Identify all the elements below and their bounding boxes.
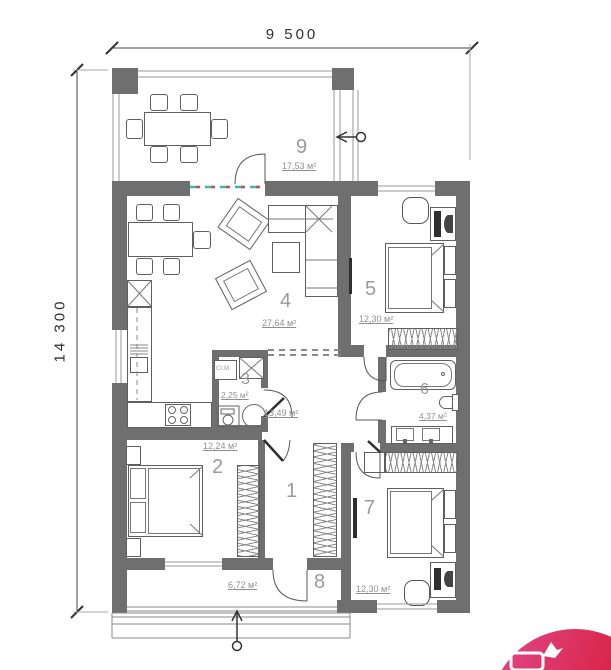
armchair <box>215 260 267 311</box>
entrance-arrow <box>232 611 242 651</box>
fridge <box>127 280 152 307</box>
room-2-area: 12,24 м² <box>203 441 237 451</box>
room-4-number: 4 <box>280 290 291 313</box>
nightstand <box>444 490 456 519</box>
nightstand <box>444 279 456 308</box>
wall <box>338 345 364 357</box>
wall <box>341 443 354 452</box>
wall <box>112 181 127 330</box>
office-chair <box>404 580 430 606</box>
armchair-seat <box>226 206 263 242</box>
toilet-cistern <box>452 394 459 411</box>
chair <box>150 94 168 111</box>
wall <box>378 420 386 443</box>
nightstand <box>126 446 141 465</box>
room-5-number: 5 <box>365 278 376 301</box>
sink <box>422 428 440 441</box>
desk-chair-tucked <box>444 215 453 233</box>
open-passage-dashes <box>268 350 340 355</box>
sink <box>396 428 414 441</box>
armchair-seat <box>223 268 259 302</box>
wardrobe <box>313 443 337 557</box>
chair <box>211 119 228 139</box>
bed-mattress <box>390 491 432 554</box>
wall <box>112 558 165 570</box>
computer-monitor <box>434 568 441 590</box>
wall <box>222 558 273 570</box>
office-chair <box>402 197 429 224</box>
room-9-area: 17,53 м² <box>282 161 316 171</box>
nightstand <box>126 538 141 557</box>
terrace-column <box>332 68 354 90</box>
room-9-number: 9 <box>296 136 307 159</box>
room-2-number: 2 <box>212 456 223 479</box>
wardrobe <box>237 465 260 557</box>
room-1-area: 13,49 м² <box>264 408 298 418</box>
room-3-number: 3 <box>241 371 250 389</box>
room-7-number: 7 <box>364 497 375 520</box>
chair <box>136 204 153 221</box>
plan-linework <box>0 0 611 670</box>
wall <box>341 452 351 613</box>
washing-machine-label: Ст.М. <box>216 366 231 372</box>
coffee-table <box>272 242 300 273</box>
radiator <box>353 498 357 538</box>
kitchen-counter <box>127 307 152 402</box>
wall <box>112 427 262 440</box>
porch-steps <box>112 607 350 638</box>
wall <box>112 383 127 613</box>
chair <box>163 204 180 221</box>
wall <box>378 357 386 392</box>
room-8-number: 8 <box>314 571 325 594</box>
chair <box>180 146 198 163</box>
dining-table <box>144 112 211 146</box>
toilet <box>439 396 453 409</box>
chair <box>126 119 143 139</box>
radiator <box>349 258 352 294</box>
terrace-exit-arrow <box>337 132 366 142</box>
computer-monitor <box>434 211 441 237</box>
wall <box>212 350 268 357</box>
floor-plan: Ст.М. <box>0 0 611 670</box>
wall <box>307 558 341 570</box>
room-8-area: 6,72 м² <box>228 580 257 590</box>
wall <box>437 600 470 613</box>
chair <box>136 258 153 275</box>
chair <box>180 94 198 111</box>
room-6-number: 6 <box>420 381 429 399</box>
pillow <box>130 502 146 533</box>
bed-mattress <box>148 468 200 534</box>
room-6-area: 4,37 м² <box>419 411 447 421</box>
wardrobe <box>385 452 458 473</box>
wall <box>265 181 378 196</box>
sofa <box>305 205 338 297</box>
watermark-logo-glyph <box>505 636 565 670</box>
chair <box>150 146 168 163</box>
chair <box>163 258 180 275</box>
armchair <box>217 198 270 250</box>
room-4-area: 27,64 м² <box>262 318 296 328</box>
desk-chair-tucked <box>444 571 453 587</box>
room-3-area: 2,25 м² <box>221 390 249 400</box>
dimension-width-label: 9 500 <box>252 26 332 43</box>
wall <box>380 443 456 452</box>
bed-mattress <box>388 247 432 309</box>
dimension-height-label: 14 300 <box>52 291 69 371</box>
dining-table <box>128 222 193 257</box>
nightstand <box>444 524 456 553</box>
toilet <box>218 406 239 427</box>
pillow <box>130 468 146 499</box>
stove <box>165 404 191 426</box>
wardrobe <box>388 328 458 350</box>
room-1-number: 1 <box>286 480 297 503</box>
kitchen-sink <box>130 357 148 373</box>
terrace-column <box>112 68 138 94</box>
chair <box>193 231 211 249</box>
nightstand <box>444 246 456 275</box>
closet-shelf <box>364 452 385 473</box>
room-7-area: 12,30 м² <box>356 584 390 594</box>
room-5-area: 12,30 м² <box>359 314 393 324</box>
